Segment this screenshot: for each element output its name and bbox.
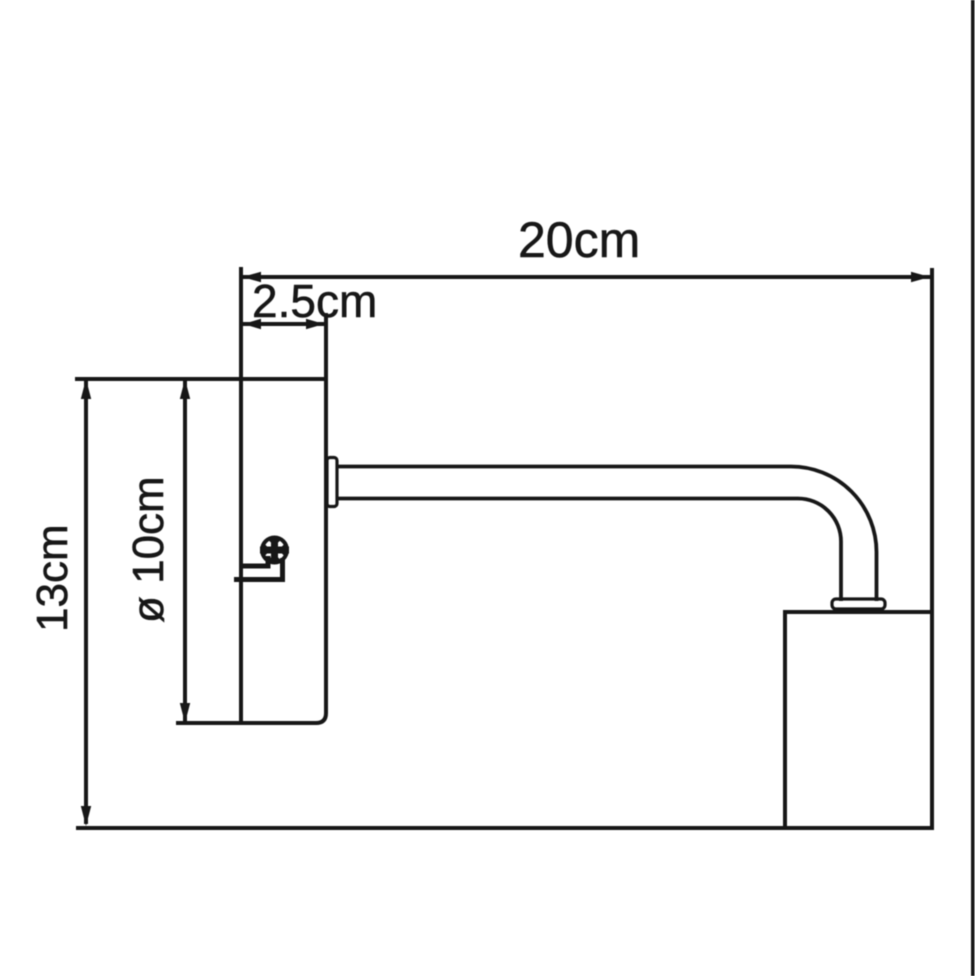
svg-text:13cm: 13cm	[28, 524, 77, 632]
svg-text:2.5cm: 2.5cm	[252, 275, 377, 327]
svg-text:20cm: 20cm	[518, 212, 640, 268]
svg-text:ø 10cm: ø 10cm	[124, 476, 173, 623]
